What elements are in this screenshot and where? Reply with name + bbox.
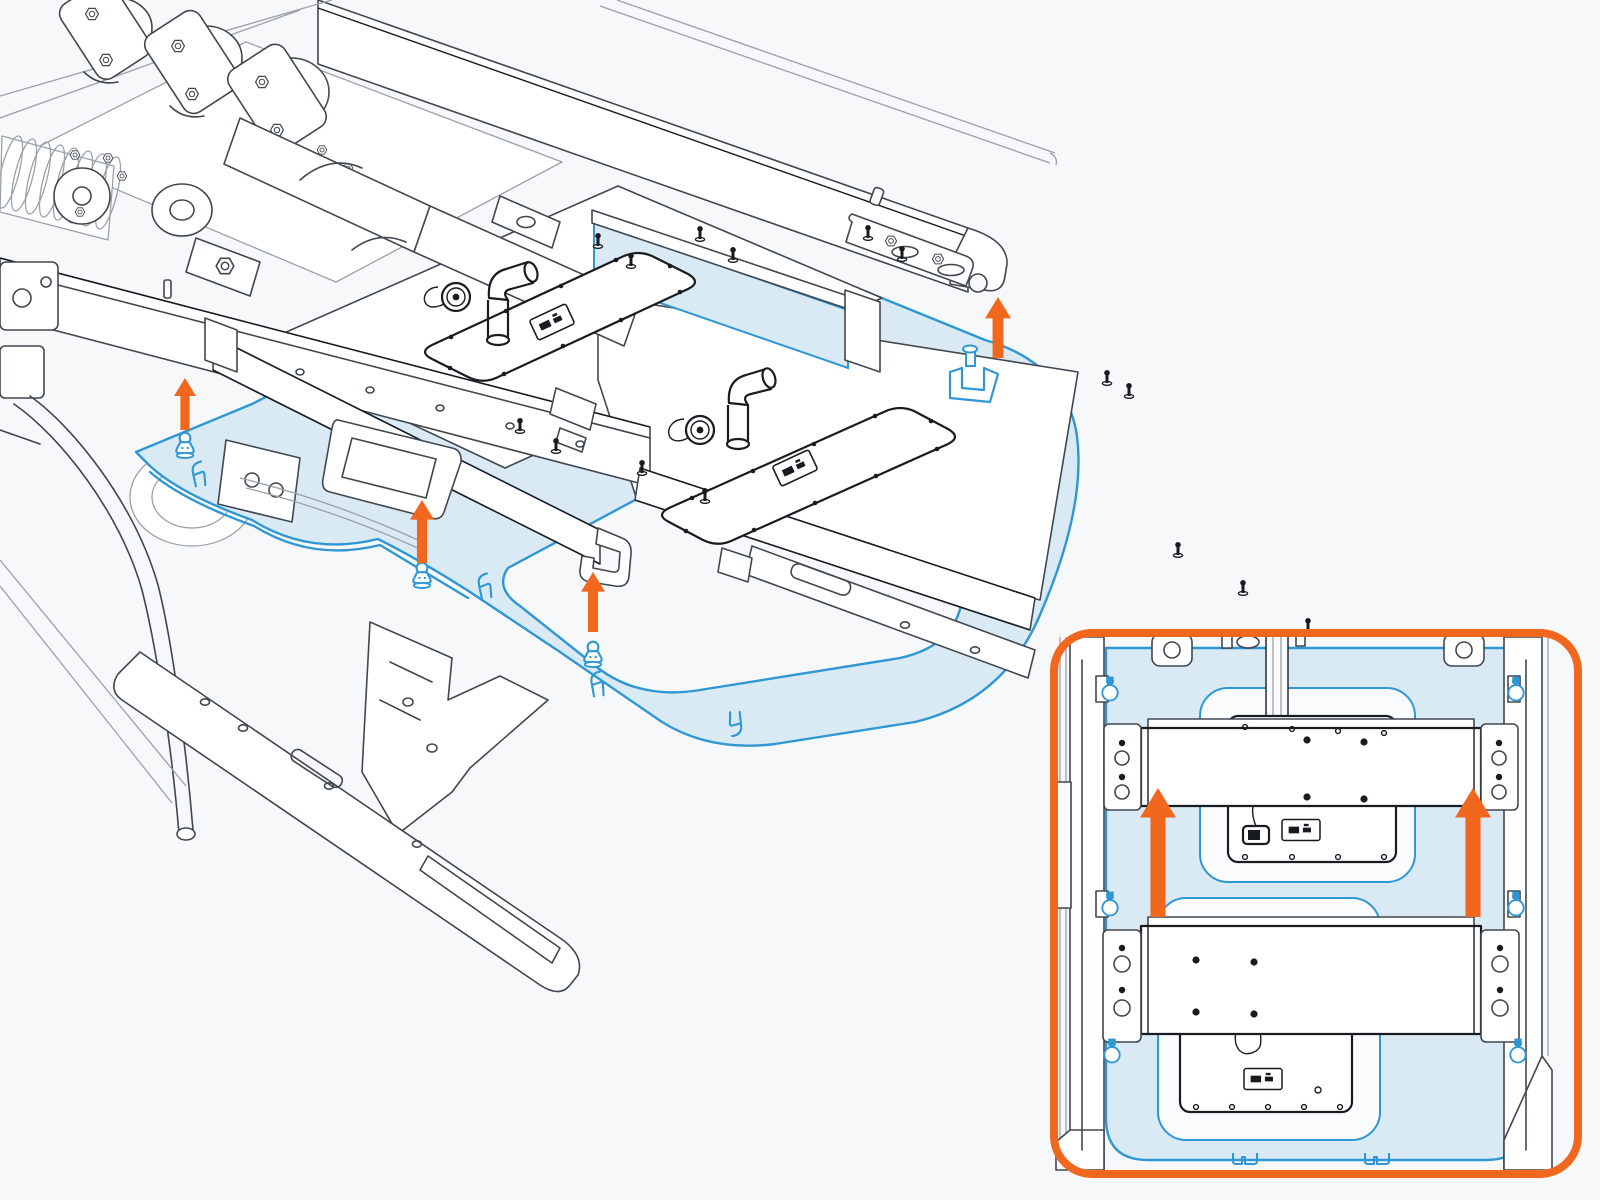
id-placard [1244,1069,1282,1090]
bolt-dot [1360,795,1367,802]
bolt-dot [1250,958,1257,965]
bolt-dot [1250,1010,1257,1017]
pulley-disc [152,184,212,236]
assembly-diagram [0,0,1600,1200]
pushpin-fastener-icon [176,433,193,458]
id-placard [1282,820,1320,841]
tray-wall [845,290,880,372]
driveshaft-lines [1266,636,1288,728]
inset-detail-view [1054,633,1578,1174]
diagram-canvas [0,0,1600,1200]
inset-crossmember-upper [1104,719,1518,810]
pushpin-fastener-icon [413,563,430,588]
bolt-dot [1192,1008,1199,1015]
bolt-dot [1360,738,1367,745]
bolt-dot [1192,956,1199,963]
pushpin-fastener-icon [584,642,601,667]
bolt-dot [1303,793,1310,800]
inset-crossmember-lower [1103,917,1519,1042]
bolt-dot [1303,736,1310,743]
